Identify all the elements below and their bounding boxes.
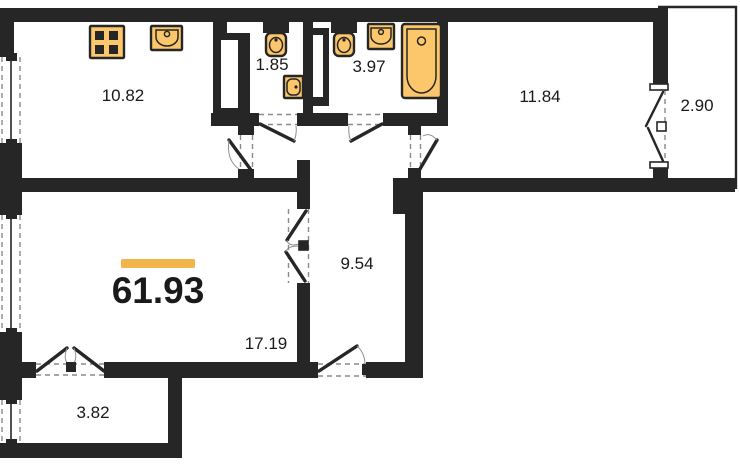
kitchen-area-label: 10.82 bbox=[102, 86, 145, 105]
bedroom-area-label: 11.84 bbox=[519, 87, 560, 106]
kitchen-sink-icon bbox=[151, 26, 182, 50]
stove-icon bbox=[90, 26, 124, 58]
floor-plan-drawing: 10.82 1.85 3.97 11.84 2.90 9.54 17.19 3.… bbox=[0, 0, 740, 465]
total-area-accent-bar bbox=[121, 259, 195, 268]
hallway-area-label: 9.54 bbox=[340, 254, 373, 273]
total-area-label: 61.93 bbox=[112, 270, 205, 311]
wc-toilet-icon bbox=[263, 22, 289, 56]
bathroom-basin-icon bbox=[368, 24, 394, 49]
loggia-area-label: 3.82 bbox=[76, 403, 109, 422]
floor-plan: 10.82 1.85 3.97 11.84 2.90 9.54 17.19 3.… bbox=[0, 0, 740, 465]
bathtub-icon bbox=[402, 24, 441, 98]
bathroom-toilet-icon bbox=[331, 22, 357, 56]
living-room-window bbox=[2, 215, 20, 332]
kitchen-door bbox=[228, 135, 252, 170]
hallway-double-door bbox=[286, 209, 309, 283]
total-area: 61.93 bbox=[112, 259, 205, 311]
kitchen-window bbox=[2, 57, 20, 143]
bedroom-door bbox=[411, 135, 438, 169]
wc-area-label: 1.85 bbox=[255, 55, 288, 74]
balcony-area-label: 2.90 bbox=[680, 96, 713, 115]
loggia-window bbox=[2, 400, 20, 443]
bathroom-area-label: 3.97 bbox=[352, 57, 385, 76]
living-room-area-label: 17.19 bbox=[245, 334, 288, 353]
wc-basin-icon bbox=[284, 76, 303, 98]
